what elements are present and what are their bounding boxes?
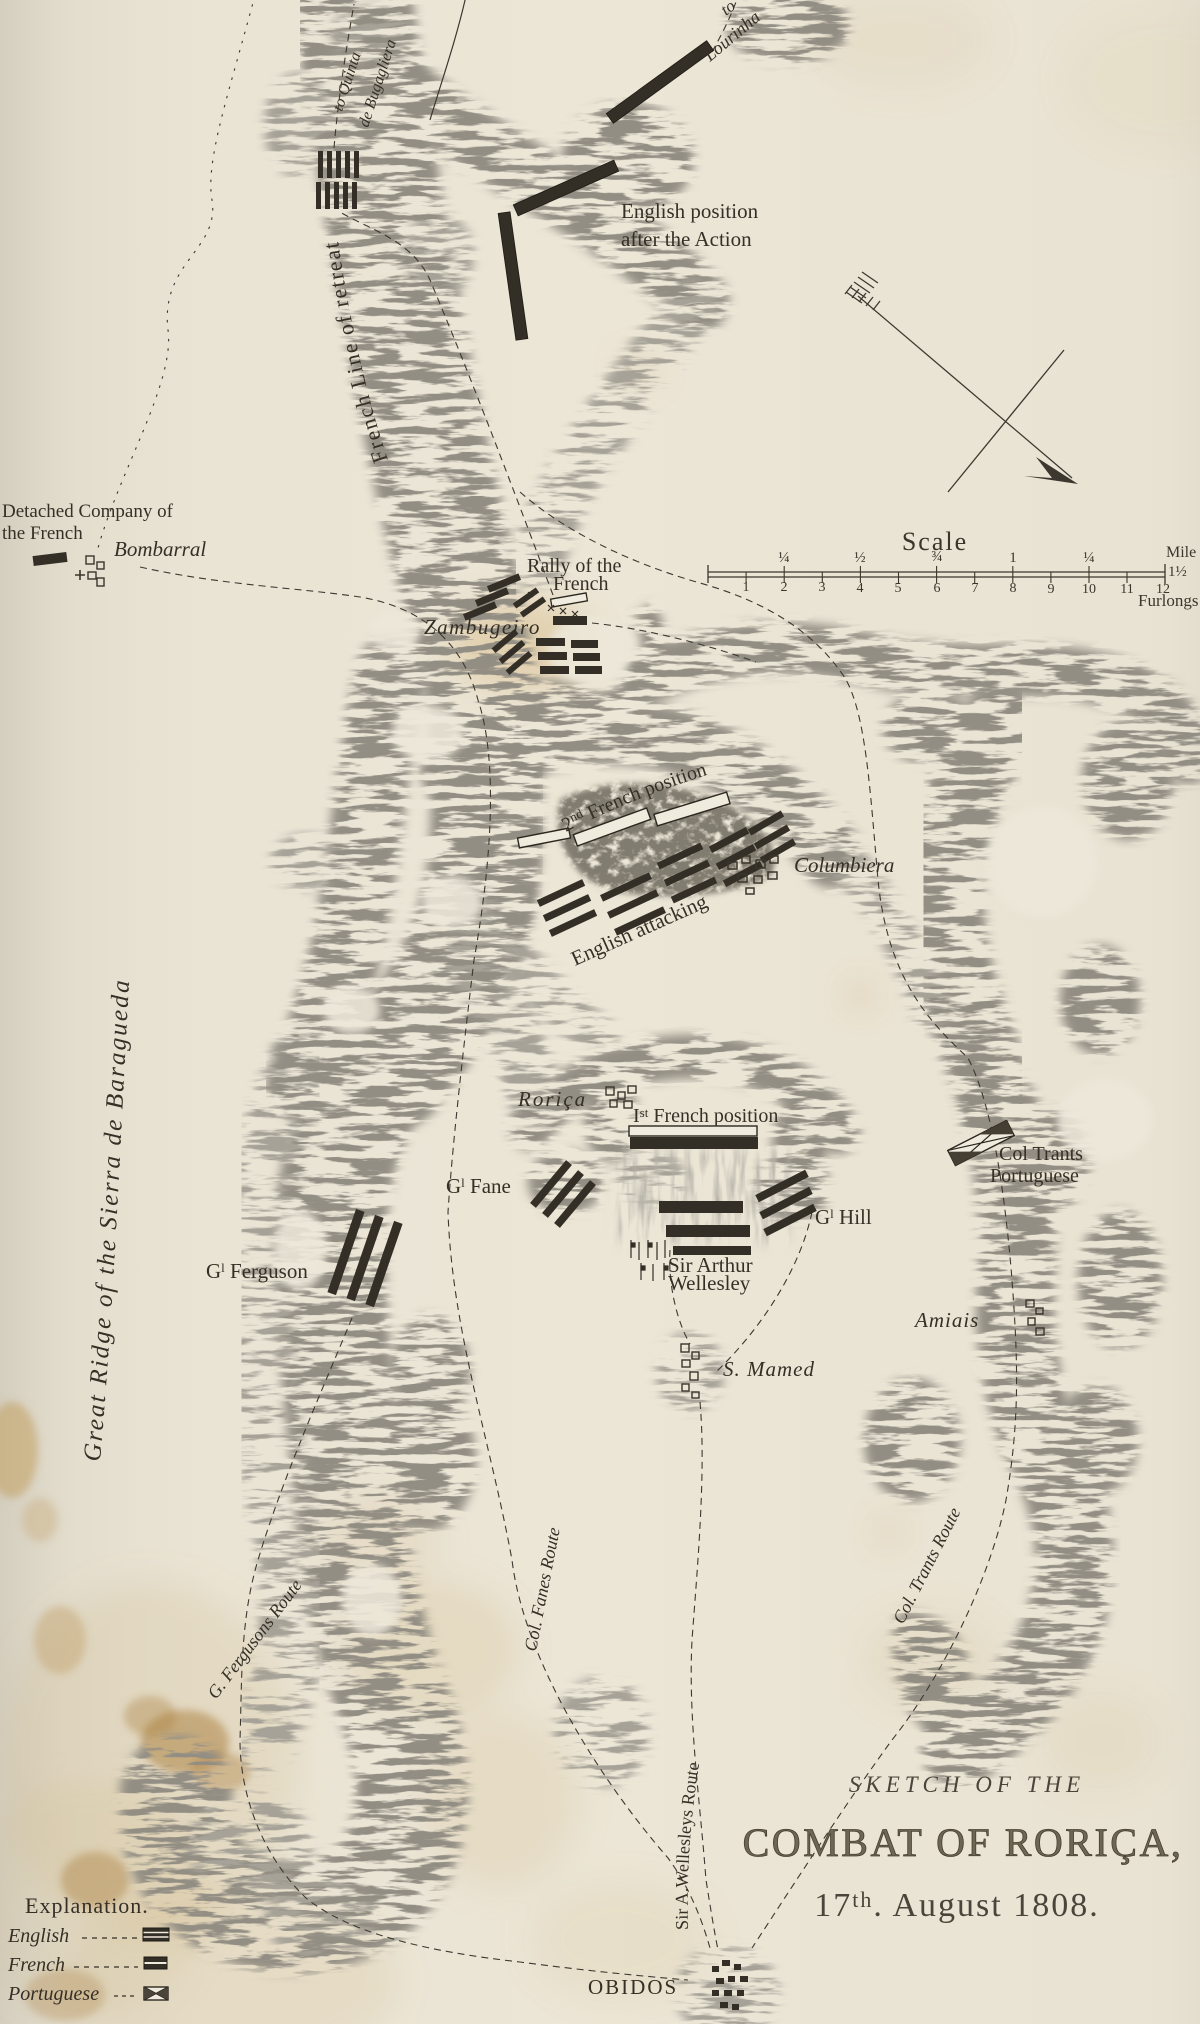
svg-text:¾: ¾ (931, 549, 942, 565)
svg-text:6: 6 (934, 581, 941, 596)
svg-text:1: 1 (1009, 550, 1017, 566)
svg-text:11: 11 (1120, 582, 1133, 597)
svg-text:10: 10 (1082, 582, 1096, 597)
svg-text:¼: ¼ (778, 550, 789, 566)
svg-text:English: English (7, 1925, 69, 1947)
svg-text:Amiais: Amiais (913, 1308, 979, 1332)
svg-text:1: 1 (743, 580, 750, 595)
svg-text:French: French (7, 1954, 65, 1976)
svg-text:Mile: Mile (1166, 544, 1196, 561)
svg-text:French: French (553, 573, 609, 595)
svg-text:9: 9 (1048, 582, 1055, 597)
svg-text:Bombarral: Bombarral (114, 537, 206, 561)
svg-text:Roriça: Roriça (517, 1087, 587, 1111)
svg-text:Zambugeiro: Zambugeiro (424, 615, 541, 639)
svg-text:8: 8 (1010, 581, 1017, 596)
svg-text:Explanation.: Explanation. (25, 1893, 149, 1918)
svg-text:after the Action: after the Action (621, 227, 752, 251)
svg-text:4: 4 (857, 581, 864, 596)
svg-text:1½: 1½ (1168, 564, 1187, 580)
svg-text:Gl Hill: Gl Hill (815, 1205, 872, 1229)
svg-text:Gl Fane: Gl Fane (446, 1174, 511, 1198)
svg-text:the French: the French (2, 523, 83, 544)
svg-text:5: 5 (895, 581, 902, 596)
svg-text:COMBAT OF RORIÇA,: COMBAT OF RORIÇA, (743, 1820, 1184, 1865)
svg-text:Portuguese: Portuguese (7, 1983, 99, 2005)
svg-text:7: 7 (972, 581, 979, 596)
svg-text:English position: English position (621, 199, 759, 223)
svg-text:OBIDOS: OBIDOS (588, 1975, 678, 1999)
svg-text:Wellesley: Wellesley (668, 1271, 751, 1295)
svg-text:SKETCH OF THE: SKETCH OF THE (849, 1772, 1085, 1797)
svg-text:Portuguese: Portuguese (990, 1165, 1079, 1187)
svg-text:Columbiera: Columbiera (794, 853, 894, 877)
svg-text:3: 3 (819, 580, 826, 595)
svg-text:¼: ¼ (1083, 550, 1094, 566)
svg-text:Ist French position: Ist French position (633, 1105, 778, 1127)
svg-text:Furlongs: Furlongs (1138, 591, 1198, 610)
svg-text:Col Trants: Col Trants (999, 1143, 1083, 1165)
svg-text:½: ½ (854, 550, 865, 566)
svg-text:Detached Company of: Detached Company of (2, 501, 174, 522)
svg-text:2: 2 (781, 580, 788, 595)
svg-text:S. Mamed: S. Mamed (723, 1357, 815, 1381)
